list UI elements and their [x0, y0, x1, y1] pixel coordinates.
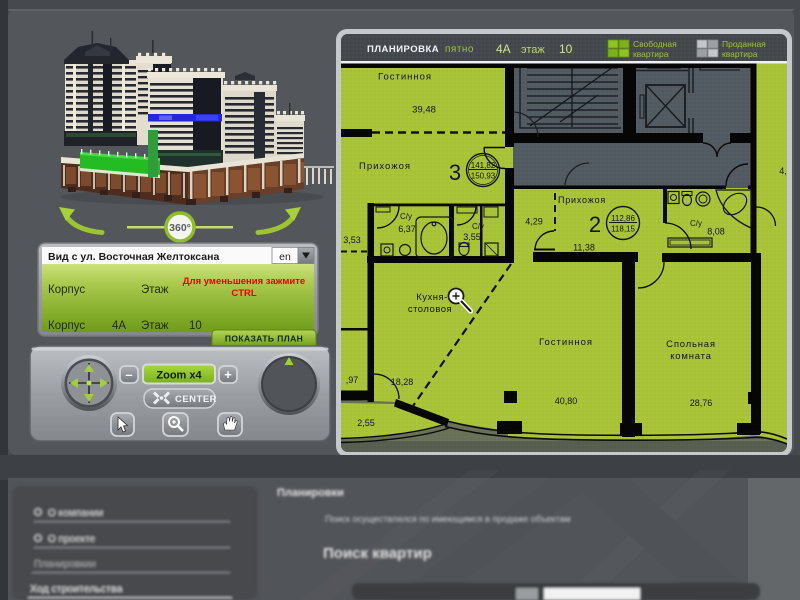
svg-text:Этаж: Этаж: [141, 320, 169, 332]
svg-text:Проданная: Проданная: [722, 39, 766, 49]
svg-text:Корпус: Корпус: [48, 320, 85, 332]
svg-text:141,82: 141,82: [471, 161, 496, 170]
svg-text:3,55: 3,55: [463, 232, 481, 242]
svg-text:Планировкии: Планировкии: [34, 559, 96, 570]
svg-text:3: 3: [449, 160, 461, 185]
svg-text:,97: ,97: [346, 375, 359, 385]
svg-text:CTRL: CTRL: [231, 288, 257, 299]
svg-text:квартира: квартира: [722, 49, 758, 59]
svg-text:2: 2: [589, 212, 601, 237]
svg-text:8,08: 8,08: [707, 227, 725, 237]
svg-text:комната: комната: [670, 351, 712, 362]
svg-text:360°: 360°: [169, 222, 191, 234]
svg-text:39,48: 39,48: [412, 105, 436, 116]
svg-text:2,55: 2,55: [357, 418, 375, 428]
svg-text:Спольная: Спольная: [666, 339, 716, 350]
svg-text:столовоя: столовоя: [408, 304, 452, 315]
svg-text:28,76: 28,76: [690, 398, 713, 408]
svg-text:Этаж: Этаж: [141, 284, 169, 296]
svg-text:Планировки: Планировки: [277, 487, 344, 499]
svg-text:112,86: 112,86: [611, 214, 635, 223]
svg-text:Для уменьшения зажмите: Для уменьшения зажмите: [183, 276, 305, 287]
svg-text:Прихожоя: Прихожоя: [359, 161, 411, 172]
svg-text:4,29: 4,29: [525, 217, 543, 227]
svg-text:О проекте: О проекте: [48, 534, 96, 545]
svg-text:Поиск квартир: Поиск квартир: [323, 545, 432, 562]
svg-text:6,37: 6,37: [398, 224, 416, 234]
svg-text:Прихожоя: Прихожоя: [558, 195, 606, 205]
svg-text:Свободная: Свободная: [633, 39, 677, 49]
svg-text:4,: 4,: [779, 166, 787, 176]
svg-text:ПОКАЗАТЬ ПЛАН: ПОКАЗАТЬ ПЛАН: [225, 334, 303, 344]
svg-text:4А: 4А: [112, 320, 126, 332]
svg-text:С/у: С/у: [400, 212, 412, 221]
svg-text:18,28: 18,28: [391, 377, 414, 387]
svg-text:Вид с ул. Восточная Желтоксана: Вид с ул. Восточная Желтоксана: [48, 251, 219, 263]
svg-text:Кухня-: Кухня-: [416, 292, 448, 303]
svg-text:CENTER: CENTER: [175, 394, 217, 405]
svg-text:Гостинноя: Гостинноя: [539, 337, 593, 348]
svg-text:О компании: О компании: [48, 508, 103, 519]
svg-text:Ход строительства: Ход строительства: [30, 583, 122, 595]
svg-text:11,38: 11,38: [573, 243, 595, 253]
svg-text:ПЛАНИРОВКА: ПЛАНИРОВКА: [367, 44, 439, 55]
svg-text:10: 10: [559, 42, 573, 56]
svg-text:Корпус: Корпус: [48, 284, 85, 296]
svg-text:118,15: 118,15: [611, 225, 635, 234]
svg-text:40,80: 40,80: [555, 396, 578, 406]
svg-text:этаж: этаж: [521, 44, 545, 56]
svg-text:en: en: [279, 251, 291, 263]
svg-text:Поиск осуществлялся по имеющим: Поиск осуществлялся по имеющимся в прода…: [325, 514, 571, 524]
svg-text:3,53: 3,53: [343, 235, 361, 245]
svg-text:Zoom x4: Zoom x4: [156, 370, 202, 382]
svg-text:4А: 4А: [496, 42, 511, 56]
svg-text:квартира: квартира: [633, 49, 669, 59]
svg-text:150,93: 150,93: [471, 172, 496, 181]
svg-text:Гостинноя: Гостинноя: [378, 72, 432, 83]
svg-text:С/у: С/у: [472, 222, 484, 231]
svg-text:10: 10: [189, 320, 202, 332]
svg-text:+: +: [224, 367, 232, 382]
svg-text:С/у: С/у: [690, 219, 702, 228]
svg-text:пятно: пятно: [445, 44, 474, 55]
svg-text:–: –: [125, 367, 132, 382]
